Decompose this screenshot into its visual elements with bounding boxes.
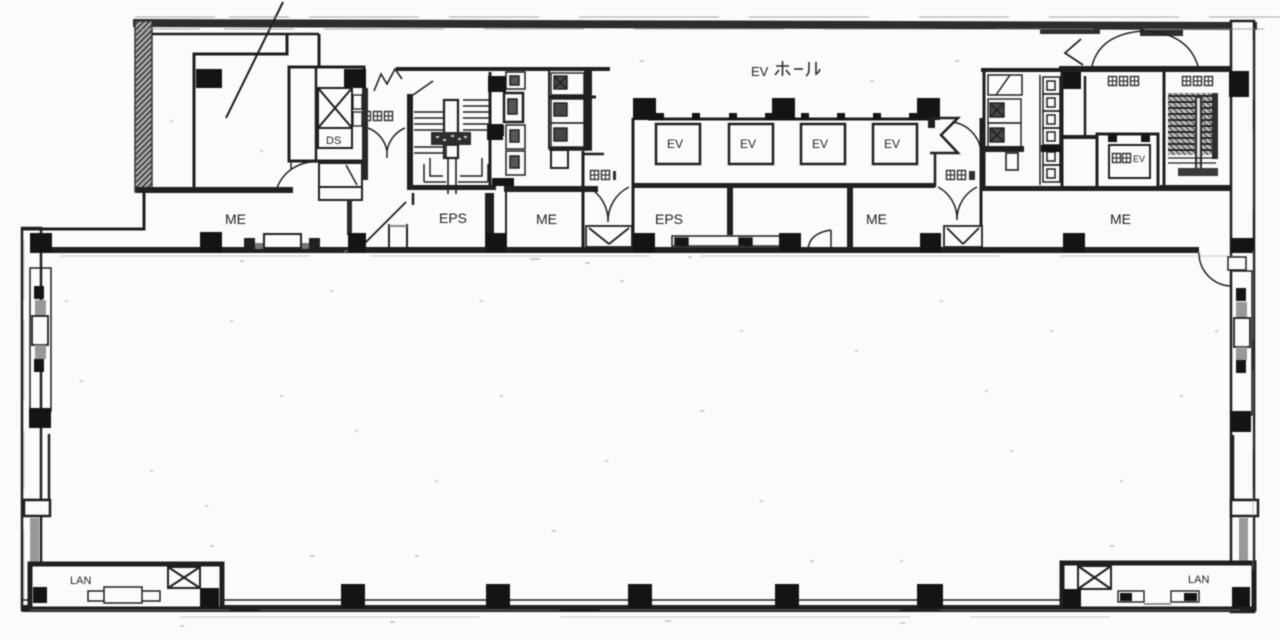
svg-text:EV: EV xyxy=(667,137,683,151)
svg-text:DS: DS xyxy=(326,135,341,147)
svg-text:EV: EV xyxy=(740,137,756,151)
svg-text:ME: ME xyxy=(866,211,887,227)
svg-text:EV: EV xyxy=(751,64,769,79)
svg-text:EV: EV xyxy=(1133,154,1145,164)
svg-text:LAN: LAN xyxy=(1188,574,1209,586)
svg-text:EV: EV xyxy=(884,137,900,151)
svg-text:EPS: EPS xyxy=(655,211,683,227)
svg-text:LAN: LAN xyxy=(70,575,91,587)
svg-text:EPS: EPS xyxy=(439,210,467,226)
svg-text:ME: ME xyxy=(225,211,246,227)
svg-text:ME: ME xyxy=(1110,211,1131,227)
svg-text:EV: EV xyxy=(812,137,828,151)
svg-text:ME: ME xyxy=(536,211,557,227)
